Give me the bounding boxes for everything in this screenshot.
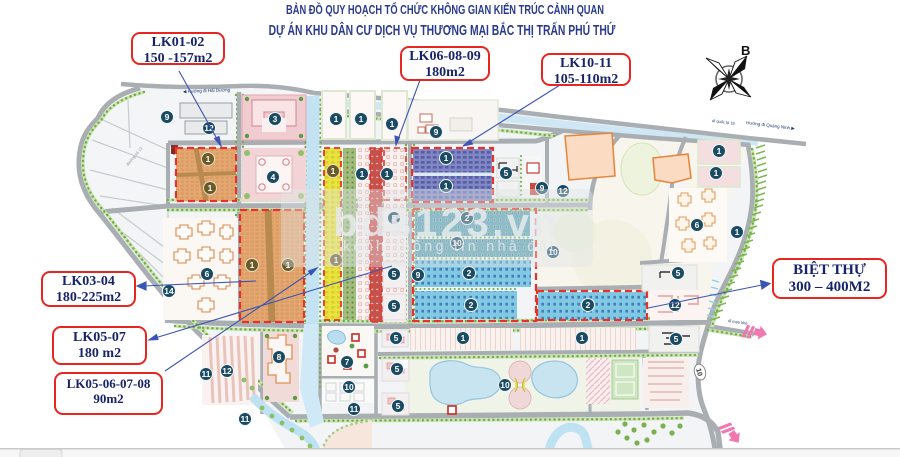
svg-text:2: 2 xyxy=(586,300,591,310)
svg-text:5: 5 xyxy=(674,334,679,344)
svg-text:1: 1 xyxy=(714,168,719,178)
svg-text:14: 14 xyxy=(164,286,174,296)
svg-text:5: 5 xyxy=(396,401,401,411)
svg-text:1: 1 xyxy=(206,154,211,164)
svg-text:1: 1 xyxy=(385,169,390,179)
svg-text:8: 8 xyxy=(277,352,282,362)
svg-text:9: 9 xyxy=(434,127,439,137)
svg-text:9: 9 xyxy=(416,270,421,280)
svg-text:1: 1 xyxy=(360,169,365,179)
svg-text:B: B xyxy=(741,43,750,58)
svg-text:4: 4 xyxy=(271,172,276,182)
svg-text:1: 1 xyxy=(461,333,466,343)
svg-text:1: 1 xyxy=(331,166,336,176)
svg-text:1: 1 xyxy=(717,146,722,156)
svg-text:5: 5 xyxy=(392,301,397,311)
svg-text:12: 12 xyxy=(222,366,232,376)
svg-text:9: 9 xyxy=(165,112,170,122)
svg-text:1: 1 xyxy=(444,153,449,163)
svg-text:1: 1 xyxy=(359,114,364,124)
svg-text:3: 3 xyxy=(273,114,278,124)
svg-text:5: 5 xyxy=(392,269,397,279)
svg-text:1: 1 xyxy=(735,227,740,237)
svg-text:11: 11 xyxy=(241,414,250,424)
svg-text:11: 11 xyxy=(350,404,359,414)
svg-text:2: 2 xyxy=(469,300,474,310)
svg-text:kênh thông tin nhà đất: kênh thông tin nhà đất xyxy=(343,239,557,255)
svg-text:11: 11 xyxy=(202,369,211,379)
svg-text:5: 5 xyxy=(504,168,509,178)
svg-text:10: 10 xyxy=(500,380,510,390)
svg-text:5: 5 xyxy=(395,364,400,374)
svg-text:1: 1 xyxy=(250,260,255,270)
svg-text:6: 6 xyxy=(695,220,700,230)
svg-text:1: 1 xyxy=(390,119,395,129)
svg-text:5: 5 xyxy=(676,268,681,278)
svg-text:6: 6 xyxy=(205,269,210,279)
svg-text:10: 10 xyxy=(344,382,354,392)
svg-text:7: 7 xyxy=(345,357,350,367)
svg-text:5: 5 xyxy=(394,333,399,343)
svg-text:1: 1 xyxy=(580,333,585,343)
svg-text:1: 1 xyxy=(334,114,339,124)
svg-text:1: 1 xyxy=(208,183,213,193)
svg-text:2: 2 xyxy=(467,268,472,278)
